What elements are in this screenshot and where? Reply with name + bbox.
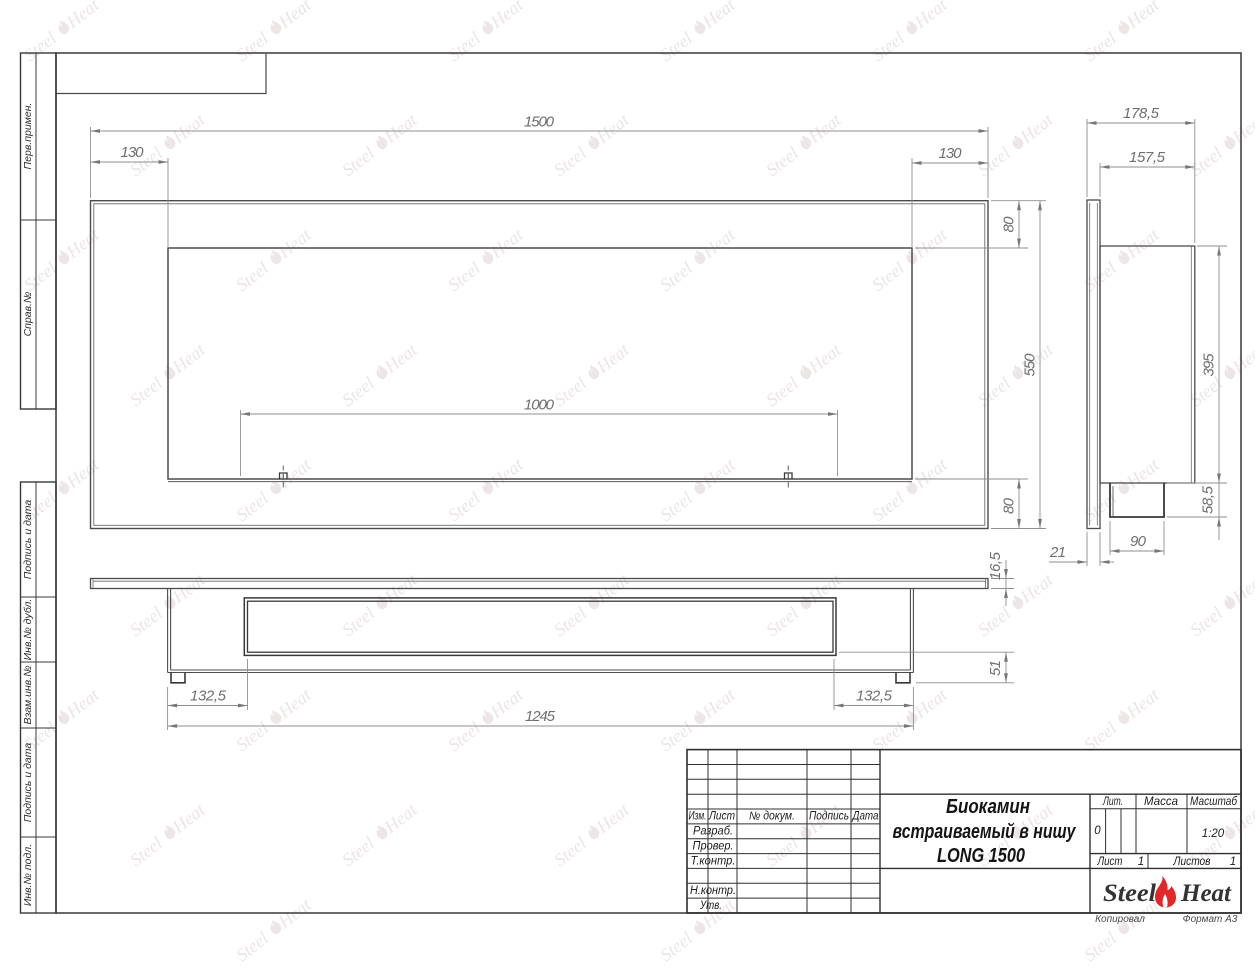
svg-text:Биокамин: Биокамин: [946, 796, 1030, 818]
svg-text:Лит.: Лит.: [1102, 796, 1123, 808]
svg-text:Листов: Листов: [1173, 856, 1211, 868]
svg-text:Подпись и дата: Подпись и дата: [22, 500, 34, 580]
svg-text:132,5: 132,5: [190, 688, 227, 705]
svg-text:1500: 1500: [524, 114, 555, 131]
svg-text:Масса: Масса: [1144, 796, 1178, 808]
svg-text:№ докум.: № докум.: [749, 811, 795, 823]
svg-text:Дата: Дата: [851, 811, 879, 823]
svg-text:1:20: 1:20: [1202, 828, 1225, 840]
svg-text:Н.контр.: Н.контр.: [690, 885, 736, 897]
svg-text:Провер.: Провер.: [693, 841, 734, 853]
svg-text:Взам.инв.№: Взам.инв.№: [22, 665, 34, 724]
svg-text:58,5: 58,5: [1200, 485, 1217, 514]
svg-text:130: 130: [939, 145, 963, 162]
svg-text:0: 0: [1094, 825, 1101, 837]
svg-text:Масштаб: Масштаб: [1190, 796, 1237, 808]
svg-text:Steel: Steel: [1103, 880, 1156, 907]
svg-text:132,5: 132,5: [856, 688, 893, 705]
svg-text:Лист: Лист: [1097, 856, 1123, 868]
svg-text:1245: 1245: [525, 708, 556, 725]
svg-text:Heat: Heat: [1180, 880, 1232, 907]
svg-text:157,5: 157,5: [1129, 149, 1166, 166]
svg-text:Разраб.: Разраб.: [693, 826, 733, 838]
svg-text:80: 80: [1001, 497, 1018, 514]
svg-text:Лист: Лист: [708, 811, 735, 823]
svg-text:Изм.: Изм.: [689, 811, 707, 823]
svg-text:Подпись и дата: Подпись и дата: [22, 743, 34, 823]
svg-text:130: 130: [121, 144, 145, 161]
svg-text:LONG 1500: LONG 1500: [937, 845, 1025, 867]
svg-text:Утв.: Утв.: [699, 900, 722, 912]
svg-text:80: 80: [1001, 216, 1018, 233]
svg-text:Т.контр.: Т.контр.: [691, 856, 736, 868]
svg-text:Инв.№ дубл.: Инв.№ дубл.: [22, 599, 34, 661]
svg-text:395: 395: [1201, 353, 1218, 377]
svg-text:1: 1: [1138, 856, 1144, 868]
svg-text:51: 51: [987, 660, 1004, 676]
svg-text:Справ.№: Справ.№: [22, 292, 34, 337]
svg-text:Перв.примен.: Перв.примен.: [22, 103, 34, 170]
svg-text:21: 21: [1049, 544, 1066, 561]
svg-text:Формат A3: Формат A3: [1183, 914, 1238, 925]
svg-text:16,5: 16,5: [987, 551, 1004, 580]
svg-text:Инв.№ подл.: Инв.№ подл.: [22, 844, 34, 906]
svg-text:178,5: 178,5: [1123, 105, 1160, 122]
svg-text:встраиваемый в нишу: встраиваемый в нишу: [893, 821, 1077, 843]
svg-text:1000: 1000: [524, 397, 555, 414]
svg-text:550: 550: [1022, 353, 1039, 377]
svg-text:90: 90: [1130, 533, 1147, 550]
svg-text:Подпись: Подпись: [809, 811, 849, 823]
svg-text:Копировал: Копировал: [1095, 914, 1145, 925]
svg-text:1: 1: [1230, 856, 1236, 868]
